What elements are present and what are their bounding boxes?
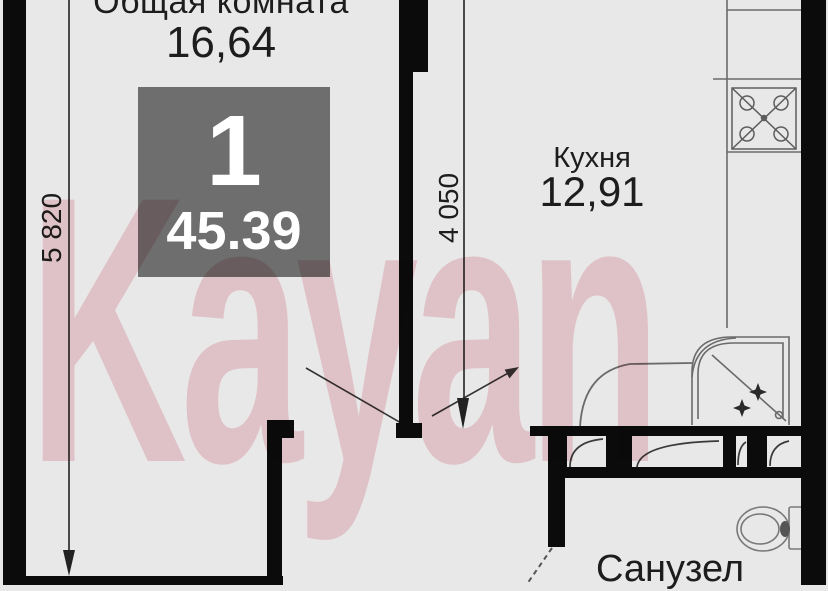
wall-bath-left: [548, 478, 565, 547]
wall-hall: [267, 437, 282, 585]
wall-post: [606, 436, 632, 467]
wall-bath-top: [530, 426, 826, 436]
spray-star-icon: [733, 399, 751, 417]
total-area: 45.39: [166, 203, 301, 259]
wall-bottom: [3, 576, 283, 585]
dimension-label-middle: 4 050: [435, 173, 463, 243]
floor-plan-drawing: [0, 0, 828, 585]
dimension-arrow-icon: [457, 398, 469, 429]
wall-right: [801, 0, 826, 585]
dimension-line-left: [63, 0, 75, 576]
kitchen-area: 12,91: [492, 168, 692, 216]
wall-middle-foot: [396, 423, 422, 438]
wall-middle: [399, 72, 413, 423]
walls: [3, 0, 826, 585]
dimension-label-left: 5 820: [38, 193, 66, 263]
living-room-area: 16,64: [121, 18, 321, 68]
wall-post: [747, 436, 767, 467]
wall-post: [548, 436, 567, 467]
wall-hall-cap: [267, 420, 294, 438]
entry-arrow-icon: [432, 367, 519, 416]
shower-icon: [692, 337, 789, 425]
wall-middle-top: [399, 0, 428, 72]
wall-post: [723, 436, 736, 467]
spray-star-icon: [749, 383, 767, 401]
floor-plan: Общая комната 16,64 1 45.39 Кухня 12,91 …: [0, 0, 828, 585]
bath-door-line: [527, 548, 552, 584]
rooms-count: 1: [206, 105, 262, 197]
door-leaf-line: [306, 368, 408, 427]
wall-left: [3, 0, 26, 585]
wall-bath-bottom: [548, 467, 826, 478]
kitchen-counter: [713, 0, 801, 328]
stove-icon: [732, 88, 796, 149]
door-swing-arc: [580, 363, 692, 427]
unit-badge: 1 45.39: [138, 87, 330, 277]
dimension-arrow-icon: [63, 550, 75, 576]
